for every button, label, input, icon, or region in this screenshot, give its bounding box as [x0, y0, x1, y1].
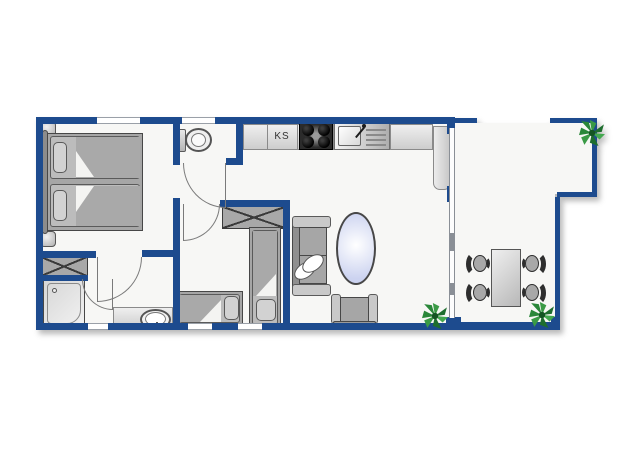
- dining-chair: [466, 280, 490, 306]
- fridge-label: KS: [267, 124, 297, 150]
- plant-icon: [579, 120, 605, 146]
- plant: [529, 302, 555, 328]
- wall-hall: [142, 250, 180, 257]
- chair-front: [522, 286, 530, 299]
- coffee-table: [336, 212, 376, 285]
- glass-wall-frame: [449, 283, 455, 295]
- chair-front: [482, 286, 490, 299]
- floorplan-image: KS: [0, 0, 640, 452]
- bed-pillow: [224, 296, 239, 320]
- wall-bathroom-left: [173, 117, 180, 165]
- drainboard-line: [366, 134, 386, 136]
- stove-burner: [302, 136, 314, 148]
- bed-pillow: [256, 299, 276, 321]
- counter-divider: [390, 124, 391, 150]
- stove-burner: [318, 136, 330, 148]
- dining-table: [491, 249, 521, 307]
- sink-faucet-dot: [362, 124, 366, 128]
- wall-bedroom2-right: [283, 200, 290, 330]
- chair-front: [522, 257, 530, 270]
- wall-bedroom1-bottom: [36, 251, 96, 258]
- sofa-cushion: [299, 227, 327, 256]
- stove-burner: [302, 124, 314, 136]
- window: [238, 323, 262, 330]
- plant: [422, 303, 448, 329]
- wardrobe: [40, 256, 88, 277]
- wardrobe: [222, 206, 286, 229]
- counter-divider: [297, 124, 298, 150]
- sofa-armrest: [292, 284, 331, 296]
- bed-pillow: [53, 190, 67, 221]
- shower-drain: [52, 288, 57, 293]
- toilet-bowl-inner: [191, 133, 206, 147]
- chair-front: [482, 257, 490, 270]
- dining-chair: [466, 251, 490, 277]
- plant: [579, 120, 605, 146]
- drainboard-line: [366, 139, 386, 141]
- armchair-seat: [340, 297, 369, 323]
- dining-chair: [522, 251, 546, 277]
- wall-closet-bottom: [36, 275, 88, 281]
- terrace-wall-top: [455, 118, 477, 123]
- window: [188, 323, 212, 330]
- glass-wall-frame: [449, 233, 455, 251]
- plant-icon: [529, 302, 555, 328]
- drainboard-line: [366, 144, 386, 146]
- terrace-wall-right: [555, 197, 560, 322]
- bed-pillow: [53, 142, 67, 173]
- drainboard-line: [366, 129, 386, 131]
- armchair-armrest: [368, 294, 378, 324]
- window: [182, 117, 215, 124]
- wall-bedroom2-left: [173, 198, 180, 330]
- apartment-floorplan: KS: [0, 0, 640, 452]
- terrace-floor-upper: [449, 123, 592, 194]
- stove-burner: [318, 124, 330, 136]
- terrace-wall-step: [557, 192, 597, 197]
- plant-icon: [422, 303, 448, 329]
- wall-left: [36, 117, 43, 330]
- wall-bedroom2-top: [220, 200, 290, 207]
- window: [88, 323, 108, 330]
- window: [97, 117, 140, 124]
- wall-bathroom-stub: [226, 158, 243, 165]
